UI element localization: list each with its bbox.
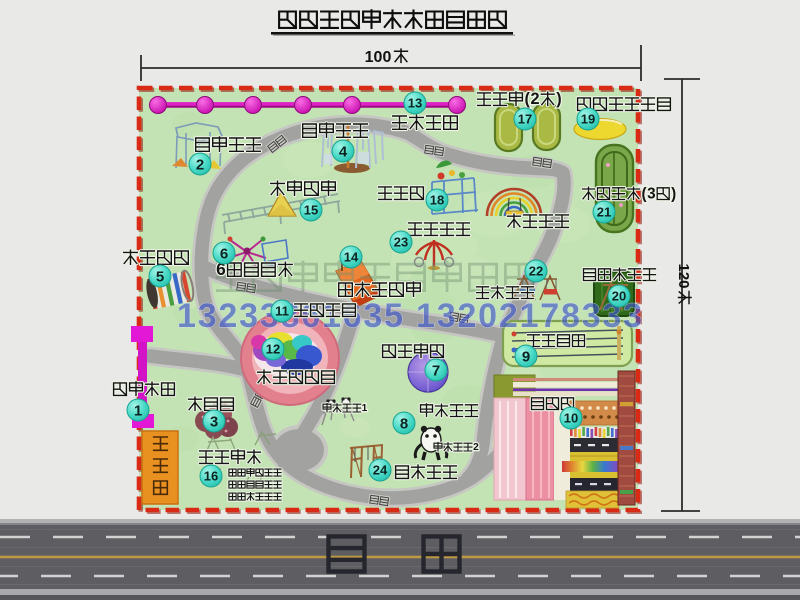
svg-text:14: 14: [344, 250, 359, 265]
svg-text:4: 4: [339, 143, 348, 160]
svg-text:20: 20: [612, 289, 626, 304]
svg-text:7: 7: [432, 362, 440, 379]
svg-text:8: 8: [400, 415, 408, 432]
svg-text:11: 11: [275, 304, 289, 319]
svg-text:6: 6: [220, 245, 228, 262]
svg-text:5: 5: [156, 268, 164, 285]
svg-text:18: 18: [430, 193, 444, 208]
svg-text:13: 13: [408, 96, 422, 111]
svg-text:24: 24: [373, 463, 388, 478]
svg-text:2: 2: [196, 156, 204, 173]
svg-text:19: 19: [581, 112, 595, 127]
svg-text:12: 12: [266, 342, 280, 357]
svg-text:23: 23: [394, 235, 408, 250]
svg-text:2: 2: [473, 442, 479, 453]
svg-text:15: 15: [304, 203, 318, 218]
svg-text:): ): [671, 185, 676, 202]
svg-text:21: 21: [597, 205, 611, 220]
svg-text:100: 100: [365, 49, 392, 66]
svg-text:3: 3: [210, 413, 218, 430]
svg-text:2: 2: [530, 90, 539, 108]
svg-text:10: 10: [564, 411, 578, 426]
svg-text:1: 1: [362, 403, 368, 414]
svg-text:120: 120: [675, 263, 692, 288]
svg-text:16: 16: [204, 469, 218, 484]
svg-text:17: 17: [518, 112, 532, 127]
svg-text:): ): [556, 90, 561, 108]
svg-text:13233861635 13202178333: 13233861635 13202178333: [177, 297, 644, 335]
svg-text:9: 9: [522, 348, 530, 365]
svg-text:1: 1: [134, 402, 142, 419]
svg-text:3: 3: [647, 185, 656, 202]
svg-text:22: 22: [529, 264, 543, 279]
